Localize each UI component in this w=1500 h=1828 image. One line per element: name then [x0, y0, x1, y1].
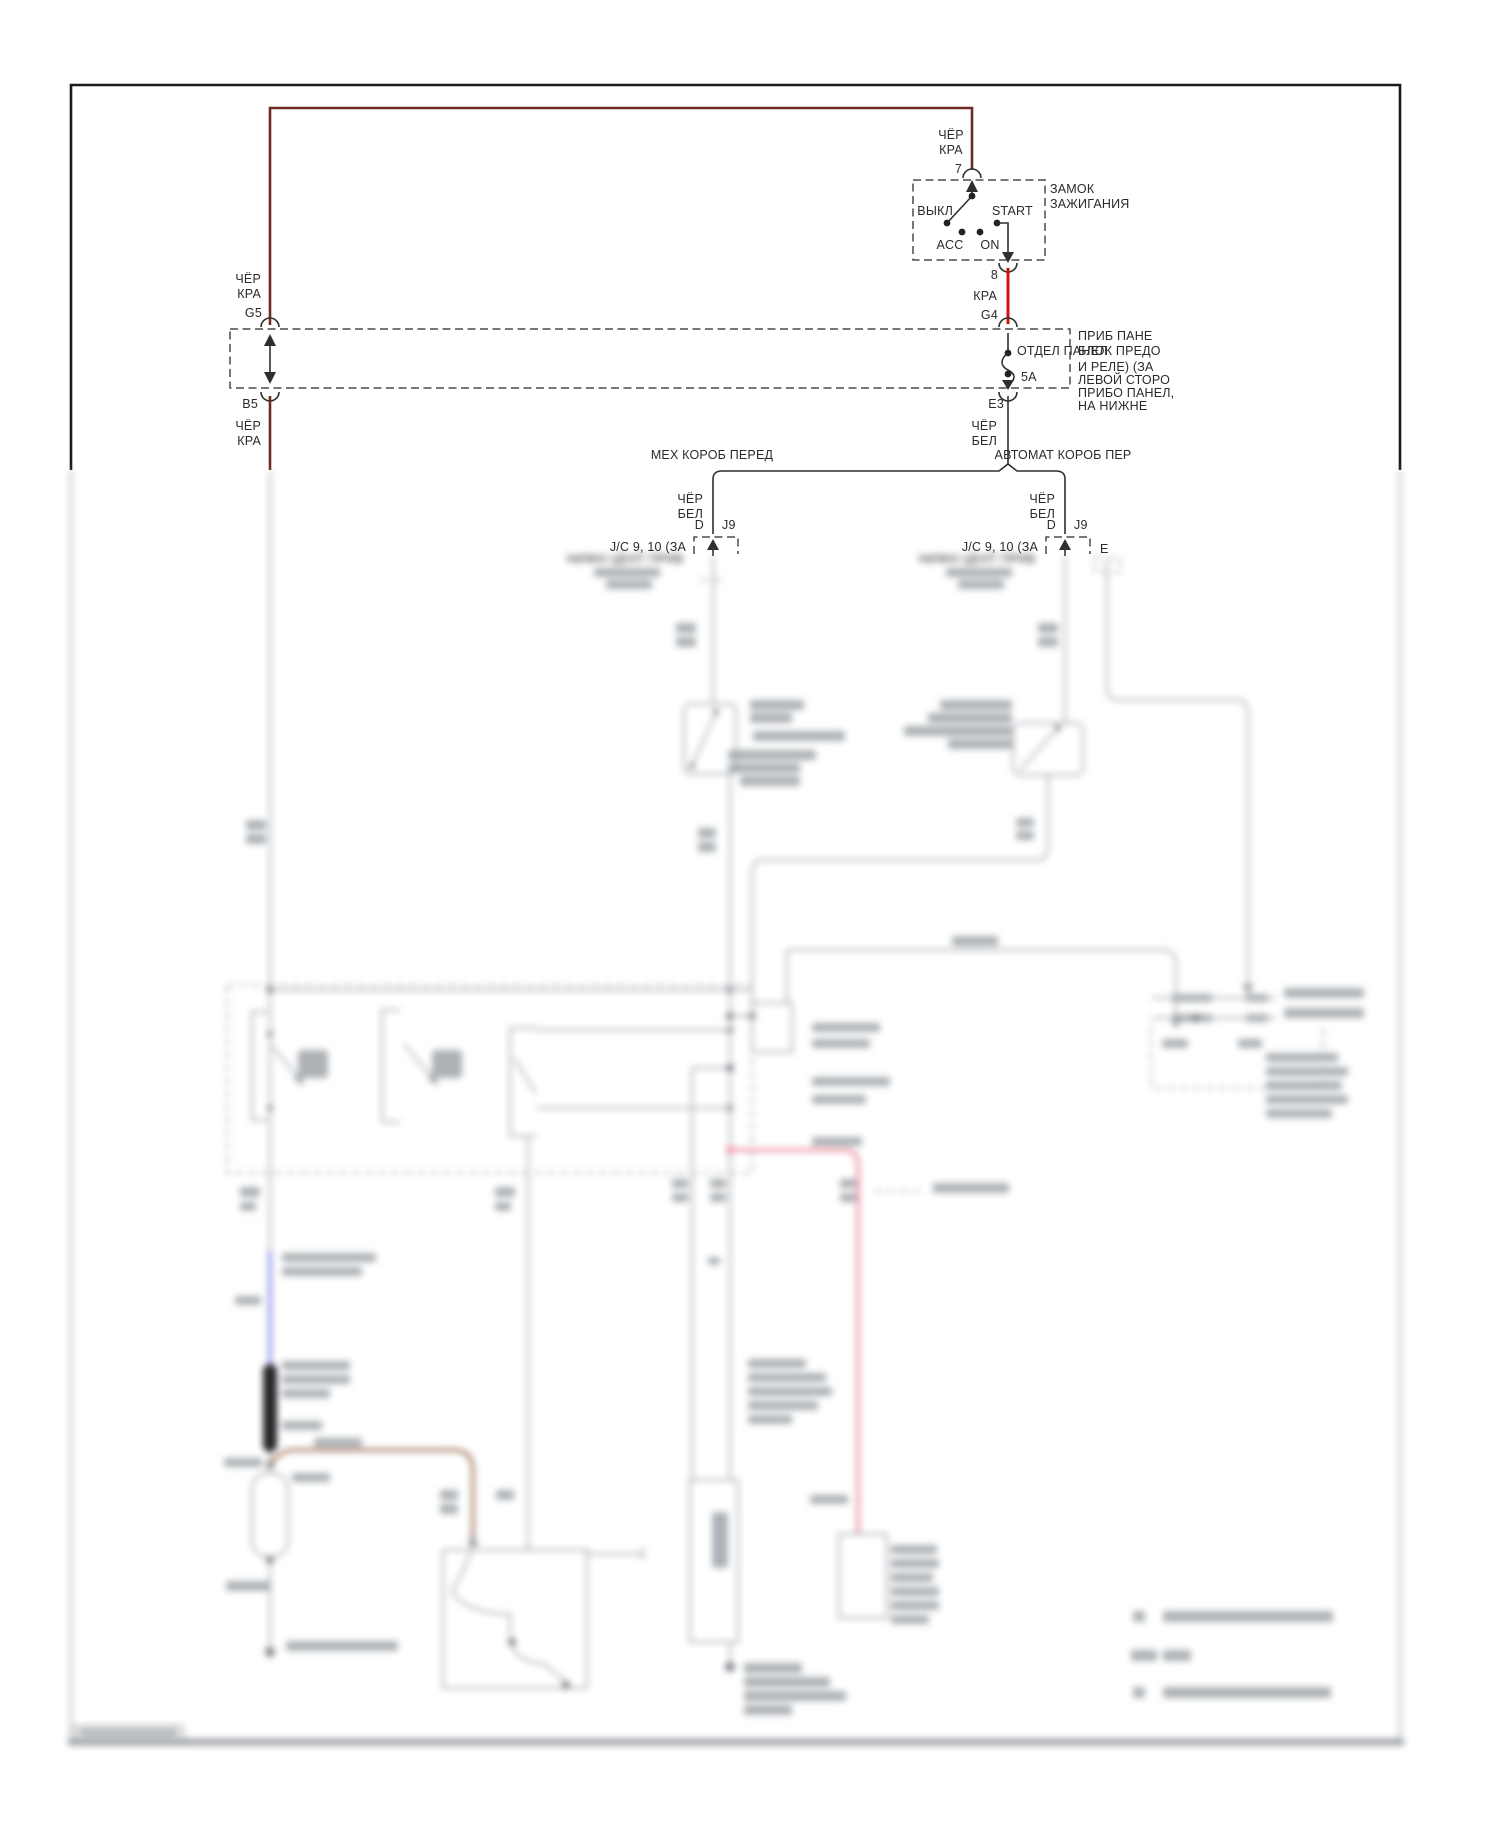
blurred-text-line: [440, 1490, 458, 1500]
blurred-text-line: [891, 1601, 939, 1610]
contact-dot: [713, 709, 719, 715]
branch-wire-color-1: ЧЁР: [677, 492, 703, 506]
arrow-up-icon: [966, 180, 978, 192]
blurred-text-line: [891, 1545, 937, 1554]
blurred-text-line: [928, 713, 1012, 723]
note-line: ПРИБ ПАНЕ: [1078, 329, 1152, 343]
blurred-text-line: [748, 1373, 826, 1382]
blurred-text-line: [891, 1587, 939, 1596]
blurred-text-line: [1266, 1053, 1338, 1062]
starter-inner-label: [712, 1512, 728, 1568]
blurred-text-line: [676, 637, 696, 647]
blurred-text-line: [282, 1421, 322, 1430]
blurred-text-line: [708, 1257, 720, 1265]
connector-blob: [432, 1050, 462, 1078]
auto-trans-branch-label: АВТОМАТ КОРОБ ПЕР: [995, 448, 1132, 462]
blurred-text-line: [1266, 1109, 1332, 1118]
ground-dot: [265, 1647, 275, 1657]
junction-dot: [267, 987, 274, 994]
blurred-text-line: [750, 700, 804, 710]
blurred-text-line: [840, 1193, 856, 1202]
pin-d: D: [1047, 518, 1056, 532]
pin-e: E: [1100, 542, 1109, 556]
acc-contact: [959, 229, 966, 236]
junction-component-box: [752, 1003, 792, 1052]
legend-bullet: [1131, 1650, 1157, 1661]
blurred-text-line: [240, 1202, 256, 1211]
blurred-text-line: [753, 731, 845, 741]
blurred-text-line: [748, 1401, 818, 1410]
wiring-diagram-page: ЧЁР КРА 7 ЗАМОК ЗАЖИГАНИЯ ВЫКЛ START ACC…: [0, 0, 1500, 1828]
branch-brace: [713, 464, 1065, 479]
blurred-text-line: [952, 936, 998, 946]
note-line: И РЕЛЕ) (ЗА: [1078, 360, 1154, 374]
jc-note2: НИЖН ЦЕНТ ПРИБ: [567, 552, 684, 566]
legend-row: [1163, 1687, 1331, 1698]
blurred-text-line: [292, 1473, 330, 1482]
starter-motor: [690, 1480, 846, 1715]
blurred-text-line: [235, 1296, 261, 1305]
blurred-text-line: [1016, 818, 1034, 827]
blurred-text-line: [748, 1387, 832, 1396]
blurred-text-line: [728, 750, 816, 760]
contact-dot: [562, 1681, 570, 1689]
pin-j9: J9: [1074, 518, 1088, 532]
pin-j9: J9: [722, 518, 736, 532]
junction-dot: [267, 1031, 273, 1037]
blurred-text-line: [744, 1677, 830, 1687]
blurred-text-line: [748, 1359, 806, 1368]
contact-dot: [1055, 725, 1061, 731]
fuse-panel-note: ПРИБ ПАНЕ БЛОК ПРЕДО И РЕЛЕ) (ЗА ЛЕВОЙ С…: [1078, 329, 1174, 413]
connector-segment: [1172, 994, 1212, 1002]
pos-acc-label: ACC: [937, 238, 964, 252]
pin-b5: B5: [242, 397, 258, 411]
blurred-text-line: [1016, 831, 1034, 840]
ignition-title-1: ЗАМОК: [1050, 182, 1095, 196]
junction-dot: [267, 1105, 273, 1111]
blurred-text-line: [495, 1202, 511, 1211]
note-line: ЛЕВОЙ СТОРО: [1078, 372, 1170, 387]
junction-dot: [266, 1556, 274, 1564]
ignition-pin-7: 7: [955, 162, 962, 176]
automatic-branch: ЧЁР БЕЛ D J9 J/C 9, 10 (ЗА E: [962, 479, 1109, 556]
legend-row: [1163, 1611, 1333, 1622]
arrow-up-icon: [1059, 539, 1071, 550]
right-out-color-1: ЧЁР: [971, 419, 997, 433]
blurred-text-line: [812, 1137, 862, 1146]
blurred-text-line: [314, 1438, 362, 1447]
ignition-switch-box: [913, 180, 1045, 260]
note-line: БЛОК ПРЕДО: [1078, 344, 1161, 358]
blurred-text-line: [79, 1729, 178, 1736]
solenoid-pink-wire: [730, 1150, 858, 1534]
pos-start-label: START: [992, 204, 1033, 218]
pin-e3: E3: [988, 397, 1004, 411]
contact-dot: [508, 1638, 516, 1646]
blurred-text-line: [940, 700, 1012, 710]
right-module-circuit: [787, 558, 1364, 1118]
off-contact: [944, 220, 951, 227]
blurred-text-line: [744, 1705, 792, 1715]
arrow-down-icon: [264, 372, 276, 384]
blurred-text-line: [282, 1267, 362, 1276]
blurred-text-line: [710, 1179, 726, 1188]
blurred-text-line: [748, 1415, 792, 1424]
automatic-output-wire: [752, 775, 1048, 1016]
pos-off-label: ВЫКЛ: [917, 204, 953, 218]
legend-row: [1163, 1650, 1191, 1661]
manual-branch: ЧЁР БЕЛ D J9 J/C 9, 10 (ЗА: [610, 479, 738, 556]
blurred-text-line: [246, 820, 266, 830]
junction-dot: [1192, 1014, 1200, 1022]
blurred-text-line: [676, 623, 696, 633]
blurred-text-line: [891, 1615, 929, 1624]
blurred-text-line: [710, 1193, 726, 1202]
jc-note2: НИЖН ЦЕНТ ПРИБ: [919, 552, 1036, 566]
blurred-text-line: [1162, 1039, 1188, 1048]
blurred-text-line: [812, 1023, 880, 1032]
arrowhead-icon: [1242, 984, 1254, 995]
arrow-up-icon: [264, 334, 276, 346]
arrow-down-icon: [1002, 252, 1014, 263]
blurred-text-line: [440, 1504, 458, 1514]
blurred-text-line: [282, 1253, 376, 1262]
connector-bracket: [252, 1012, 268, 1120]
blurred-text-line: [1038, 637, 1058, 647]
ignition-pin-8: 8: [991, 268, 998, 282]
blurred-text-line: [496, 1490, 514, 1500]
connector-segment: [1246, 994, 1268, 1002]
connector-bracket: [510, 1028, 536, 1136]
left-wire-color-1: ЧЁР: [235, 272, 261, 286]
ignition-wire-color-1: ЧЁР: [938, 128, 964, 142]
ignition-title-2: ЗАЖИГАНИЯ: [1050, 197, 1130, 211]
blurred-text-line: [740, 776, 800, 786]
blurred-text-line: [891, 1573, 933, 1582]
blurred-text-line: [728, 763, 800, 773]
enclosure-box: [227, 985, 752, 1173]
blurred-text-line: [672, 1179, 688, 1188]
blurred-text-line: [594, 568, 660, 577]
legend: [1131, 1611, 1333, 1698]
red-wire-color: КРА: [973, 289, 997, 303]
pos-on-label: ON: [980, 238, 999, 252]
ground-dot: [725, 1662, 735, 1672]
blurred-text-line: [282, 1389, 330, 1398]
pin-d: D: [695, 518, 704, 532]
connector-segment: [1246, 1014, 1268, 1022]
manual-branch-lower: [676, 556, 845, 1480]
connector-arrow: [514, 1058, 536, 1094]
left-out-color-1: ЧЁР: [235, 419, 261, 433]
connector-blob: [298, 1050, 328, 1078]
blurred-text-line: [750, 713, 792, 723]
left-out-color-2: КРА: [237, 434, 261, 448]
note-line: ПРИБО ПАНЕЛ,: [1078, 386, 1174, 400]
battery-feed-wire: [270, 108, 972, 325]
note-line: НА НИЖНЕ: [1078, 399, 1147, 413]
ignition-wire-color-2: КРА: [939, 143, 963, 157]
inline-component: [252, 1473, 288, 1557]
solenoid-circuit: [726, 1146, 1009, 1624]
blurred-text-line: [744, 1663, 802, 1673]
black-sleeve-segment: [263, 1364, 277, 1452]
blurred-text-line: [840, 1179, 856, 1188]
fuse-rating: 5A: [1021, 370, 1037, 384]
blurred-text-line: [1238, 1039, 1262, 1048]
blurred-text-line: [812, 1039, 870, 1048]
fuse-panel-box: [230, 329, 1070, 388]
terminal-7-connector: [963, 169, 981, 178]
blurred-text-line: [948, 739, 1012, 749]
blurred-text-line: [812, 1095, 866, 1104]
pin-g4: G4: [981, 308, 998, 322]
fuse-terminal-bottom: [1005, 371, 1012, 378]
junction-dot: [726, 1064, 734, 1072]
blurred-text-line: [1284, 1008, 1364, 1018]
blurred-text-line: [958, 580, 1004, 589]
blurred-text-line: [224, 1458, 262, 1467]
blurred-text-line: [933, 1183, 1009, 1193]
solenoid-box: [839, 1534, 887, 1618]
branch-wire-color-1: ЧЁР: [1029, 492, 1055, 506]
blurred-text-line: [1284, 988, 1364, 998]
blurred-text-line: [282, 1375, 350, 1384]
pin-g5: G5: [245, 306, 262, 320]
arrow-up-icon: [707, 539, 719, 550]
blurred-text-line: [891, 1559, 939, 1568]
automatic-branch-lower: [752, 556, 1083, 1016]
contact-dot: [689, 763, 695, 769]
pivot-contact: [969, 193, 976, 200]
fuse-element: [1002, 353, 1014, 384]
blurred-text-line: [1266, 1067, 1348, 1076]
blurred-text-line: [226, 1581, 270, 1591]
on-contact: [977, 229, 984, 236]
blurred-text-line: [1266, 1081, 1342, 1090]
blurred-text-line: [1038, 623, 1058, 633]
blurred-text-line: [744, 1691, 846, 1701]
blurred-text-line: [904, 726, 1012, 736]
right-out-color-2: БЕЛ: [972, 434, 997, 448]
legend-bullet: [1133, 1687, 1145, 1698]
bottom-switch-box: [443, 1550, 587, 1688]
legend-bullet: [1133, 1611, 1145, 1622]
footer-stamp: [75, 1726, 183, 1739]
connector-arrow: [404, 1044, 434, 1080]
blurred-text-line: [240, 1187, 260, 1197]
blurred-region: НИЖН ЦЕНТ ПРИБ НИЖН ЦЕНТ ПРИБ: [68, 470, 1404, 1742]
blurred-text-line: [1266, 1095, 1348, 1104]
starter-left-wire: [692, 1068, 730, 1480]
blurred-text-line: [246, 834, 266, 844]
connector-arrow: [272, 1046, 300, 1080]
left-wire-color-2: КРА: [237, 287, 261, 301]
blurred-text-line: [282, 1361, 350, 1370]
manual-trans-branch-label: МЕХ КОРОБ ПЕРЕД: [651, 448, 774, 462]
blurred-text-line: [672, 1193, 688, 1202]
blurred-text-line: [698, 842, 716, 852]
blurred-text-line: [698, 828, 716, 838]
blurred-text-line: [946, 568, 1012, 577]
blurred-text-line: [810, 1495, 848, 1504]
blurred-text-line: [286, 1641, 398, 1651]
blurred-text-line: [812, 1077, 890, 1086]
blurred-text-line: [606, 580, 652, 589]
blurred-text-line: [495, 1187, 515, 1197]
connector-bracket: [382, 1010, 400, 1122]
